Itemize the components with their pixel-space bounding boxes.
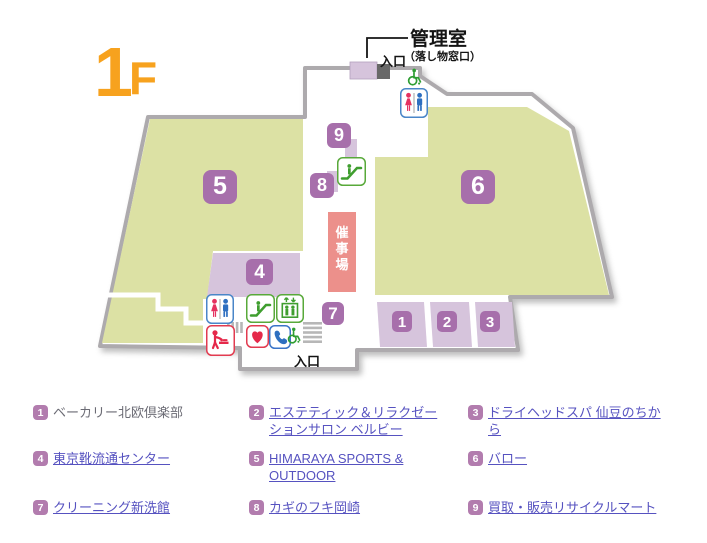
legend-number-badge: 5 <box>249 451 264 466</box>
store-link[interactable]: バロー <box>488 451 527 466</box>
legend-number-badge: 1 <box>33 405 48 420</box>
escalator-icon <box>338 158 366 186</box>
escalator-icon <box>247 295 275 323</box>
legend-number-badge: 4 <box>33 451 48 466</box>
area-badge-4: 4 <box>246 259 273 285</box>
legend-item-8: 8 カギのフキ岡崎 <box>249 499 447 516</box>
svg-text:1: 1 <box>398 314 406 331</box>
legend-number-badge: 2 <box>249 405 264 420</box>
toilet-icon <box>207 295 234 324</box>
area-badge-7: 7 <box>322 302 344 325</box>
store-link[interactable]: 買取・販売リサイクルマート <box>488 500 656 515</box>
area-badge-8: 8 <box>310 173 334 198</box>
store-link[interactable]: HIMARAYA SPORTS & OUTDOOR <box>269 451 403 483</box>
legend-item-9: 9 買取・販売リサイクルマート <box>468 499 666 516</box>
svg-text:1: 1 <box>94 33 133 111</box>
aed-heart-icon <box>247 326 269 348</box>
svg-text:4: 4 <box>254 262 265 283</box>
admin-room-label: 管理室 <box>410 27 467 50</box>
legend-item-3: 3 ドライヘッドスパ 仙豆のちから <box>468 404 666 438</box>
svg-text:3: 3 <box>486 314 494 331</box>
legend-item-7: 7 クリーニング新洗館 <box>33 499 231 516</box>
legend-number-badge: 7 <box>33 500 48 515</box>
legend-item-2: 2 エステティック＆リラクゼーションサロン ベルビー <box>249 404 447 438</box>
svg-text:事: 事 <box>335 241 348 256</box>
floor-guide-page: 催 事 場 5 <box>0 0 707 543</box>
toilet-icon <box>401 89 428 118</box>
admin-room-sublabel: （落し物窓口） <box>404 49 481 63</box>
store-link[interactable]: エステティック＆リラクゼーションサロン ベルビー <box>269 405 437 437</box>
elevator-icon <box>277 295 304 323</box>
admin-room <box>350 62 377 79</box>
area-badge-5: 5 <box>203 170 237 204</box>
area-badge-2: 2 <box>437 311 457 332</box>
store-name: ベーカリー北欧倶楽部 <box>53 405 183 420</box>
legend-number-badge: 9 <box>468 500 483 515</box>
store-link[interactable]: クリーニング新洗館 <box>53 500 170 515</box>
store-link[interactable]: ドライヘッドスパ 仙豆のちから <box>488 405 661 437</box>
legend-item-4: 4 東京靴流通センター <box>33 450 231 467</box>
legend-item-1: 1 ベーカリー北欧倶楽部 <box>33 404 231 421</box>
svg-text:5: 5 <box>213 172 227 200</box>
legend-number-badge: 6 <box>468 451 483 466</box>
svg-text:6: 6 <box>471 172 485 200</box>
svg-text:2: 2 <box>443 314 451 331</box>
svg-text:場: 場 <box>335 257 348 272</box>
legend-number-badge: 3 <box>468 405 483 420</box>
floor-label: 1 F <box>94 33 157 111</box>
event-space-label: 催 <box>335 225 348 240</box>
baby-care-icon <box>207 326 235 356</box>
floor-map: 催 事 場 5 <box>0 0 707 395</box>
area-badge-6: 6 <box>461 170 495 204</box>
phone-icon <box>270 326 291 349</box>
svg-text:8: 8 <box>317 175 327 195</box>
legend-item-6: 6 バロー <box>468 450 666 467</box>
area-badge-9: 9 <box>327 123 351 148</box>
area-badge-3: 3 <box>480 311 500 332</box>
entrance-top-label: 入口 <box>380 54 406 69</box>
legend-number-badge: 8 <box>249 500 264 515</box>
store-link[interactable]: カギのフキ岡崎 <box>269 500 360 515</box>
area-badge-1: 1 <box>392 311 412 332</box>
svg-text:9: 9 <box>334 125 344 145</box>
entrance-bottom-label: 入口 <box>294 354 320 369</box>
legend-item-5: 5 HIMARAYA SPORTS & OUTDOOR <box>249 450 447 484</box>
svg-text:7: 7 <box>328 304 337 323</box>
store-link[interactable]: 東京靴流通センター <box>53 451 170 466</box>
svg-text:F: F <box>129 52 157 104</box>
